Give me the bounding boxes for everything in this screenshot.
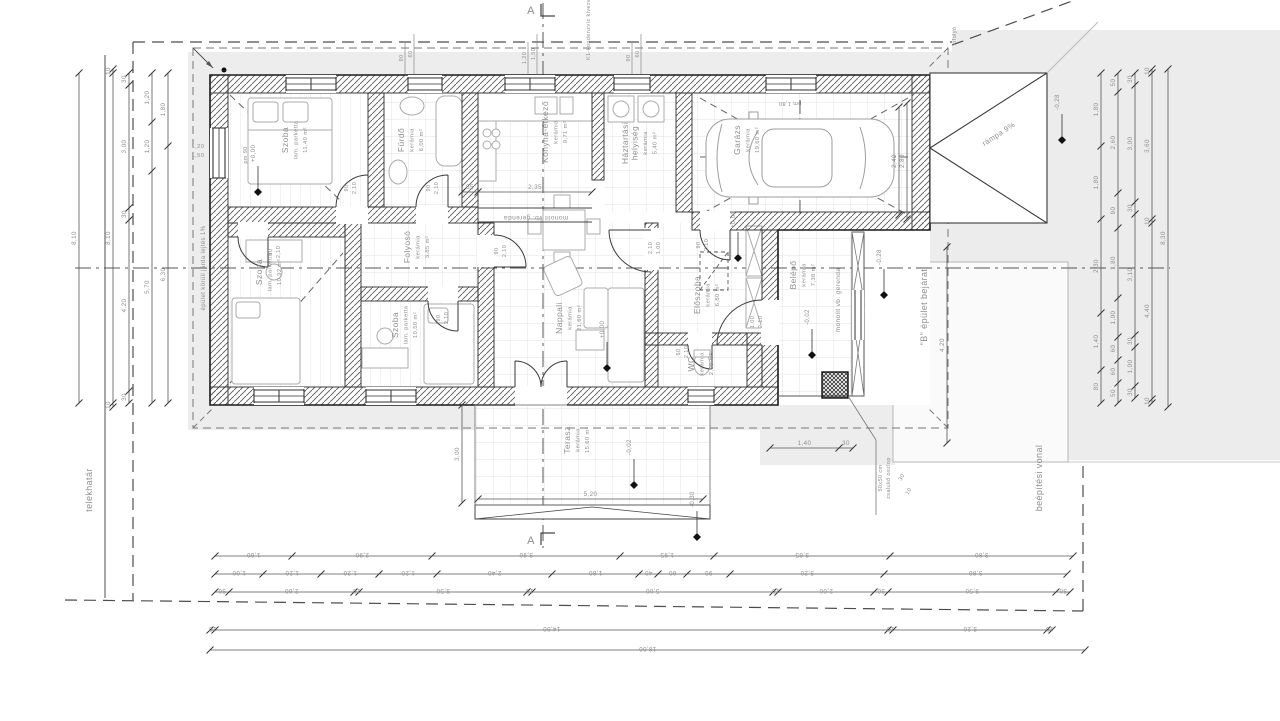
door-dim: 90 — [268, 249, 274, 256]
dim-label: 10 — [1046, 625, 1054, 632]
dim-label: 3,65 — [795, 551, 809, 558]
telekhatar-label: telekhatár — [84, 468, 94, 512]
door-dim: 90 — [494, 248, 500, 255]
wall-east-garage — [912, 75, 930, 230]
dim-label: 80 — [1093, 383, 1100, 391]
dim-label: 30 — [121, 393, 128, 401]
room-label: 10,50 m² — [413, 312, 419, 338]
dim-label: 10 — [1144, 217, 1151, 225]
dim-label: 30 — [1059, 587, 1067, 594]
room-label: kerámia — [554, 120, 560, 144]
dim-label: 14,00 — [543, 625, 561, 632]
room-label: 15,60 m² — [585, 427, 591, 453]
dim-label: 60 — [1110, 345, 1117, 353]
dim-label: 55 — [466, 184, 474, 191]
level-marker: +0,00 — [251, 145, 257, 162]
room-label: kerámia — [802, 263, 808, 287]
bathtub — [436, 96, 462, 166]
room-label: kerámia — [746, 128, 752, 152]
pm90-label: pm 90 — [243, 146, 249, 163]
room-label: kerámia — [410, 128, 416, 152]
room-label: Nappali — [554, 302, 564, 334]
door-dim: 2,10 — [352, 182, 358, 194]
room-label: Konyha-étkező — [540, 101, 550, 163]
room-label: Szoba — [254, 259, 264, 285]
room-label: 5,40 m² — [653, 132, 659, 154]
window-dim: 60 — [635, 51, 641, 58]
sofa — [608, 288, 644, 382]
dim-label: 50 — [1110, 389, 1117, 397]
room-label: kerámia — [416, 235, 422, 259]
room-label: lam. parketta — [294, 120, 300, 159]
dim-label: 1,95 — [660, 551, 674, 558]
dim-label: 8,10 — [105, 231, 112, 245]
room-label: kerámia — [643, 131, 649, 155]
jarda-label: épület körüli járda lejtés 1% — [201, 225, 207, 310]
washbasin — [400, 97, 424, 115]
dim-label: 3,00 — [454, 447, 461, 461]
room-label: 7,38 m² — [811, 264, 817, 286]
room-label: 3,85 m² — [425, 236, 431, 258]
dim-label: 30 — [121, 75, 128, 83]
level-marker: -0,28 — [877, 249, 883, 265]
dim-label: 3,80 — [969, 569, 983, 576]
dim-label: 10 — [772, 587, 780, 594]
room-terasz-floor — [475, 405, 710, 505]
dim-label: 5,00 — [646, 587, 660, 594]
kifolyo-label: kifolyó — [952, 27, 958, 45]
door-dim: 2,10 — [704, 239, 710, 251]
dim-label: 3,00 — [121, 140, 128, 154]
dim-label: 30 — [1127, 75, 1134, 83]
kondenz-label: K1-kondenzvíz kivezetés — [586, 0, 592, 60]
dim-label: 60 — [669, 569, 677, 576]
dim-label: 2,40 — [891, 154, 898, 168]
dim-label: 2,90 — [355, 551, 369, 558]
section_a-label: A — [527, 535, 535, 547]
dim-label: 30 — [898, 473, 907, 482]
dim-label: 1,20 — [285, 569, 299, 576]
door-dim: 2,10 — [276, 246, 282, 258]
dim-label: 10 — [1144, 397, 1151, 405]
window-dim: 90 — [399, 55, 405, 62]
dim-label: 10 — [353, 587, 361, 594]
level-marker: -0,28 — [1055, 94, 1061, 110]
dim-label: 30 — [877, 587, 885, 594]
room-label: 10,92 m² — [277, 259, 283, 285]
window-dim: 1,20 — [192, 144, 205, 150]
door-dim: 90 — [344, 185, 350, 192]
dim-label: 1,60 — [247, 551, 261, 558]
dim-label: 10 — [526, 587, 534, 594]
room-label: helyiség — [630, 126, 640, 160]
dim-label: 2,40 — [488, 569, 502, 576]
dim-label: 3,50 — [436, 587, 450, 594]
dim-label: 10 — [105, 67, 112, 75]
dim-label: 60 — [1110, 368, 1117, 376]
dim-label: 3,00 — [1127, 137, 1134, 151]
dim-label: 4,20 — [121, 299, 128, 313]
dim-label: 2,00 — [819, 587, 833, 594]
level-marker: -0,02 — [627, 439, 633, 455]
dim-label: 1,00 — [232, 569, 246, 576]
dim-label: 3,20 — [963, 625, 977, 632]
dim-label: 30 — [1127, 337, 1134, 345]
dim-label: 3,90 — [519, 551, 533, 558]
dim-label: 2,30 — [1093, 259, 1100, 273]
room-label: Folyosó — [402, 231, 412, 264]
dim-label: 1,00 — [1127, 360, 1134, 374]
dim-label: 5,20 — [584, 491, 598, 498]
dim-label: 1,80 — [1093, 176, 1100, 190]
room-label: Fürdő — [396, 128, 406, 152]
wall-west — [210, 75, 228, 405]
window-dim: 1,20 — [522, 52, 528, 64]
dim-label: 30 — [121, 210, 128, 218]
door-dim: 90 — [436, 315, 442, 322]
room-label: 9,71 m² — [563, 121, 569, 143]
dim-label: 10 — [1144, 67, 1151, 75]
dim-label: 10 — [105, 401, 112, 409]
dim-label: 3,50 — [965, 587, 979, 594]
dim-label: 90 — [705, 569, 713, 576]
room-label: kerámia — [568, 306, 574, 330]
window-dim: 90 — [626, 55, 632, 62]
door-dim: 2,10 — [502, 245, 508, 257]
dim-label: 3,20 — [800, 569, 814, 576]
dim-label: 1,20 — [144, 91, 151, 105]
door-dim: 2,10 — [648, 242, 654, 254]
dim-label: 10 — [209, 625, 217, 632]
room-label: Háztartási — [620, 122, 630, 164]
dim-label: 10 — [905, 487, 914, 496]
dim-label: 1,20 — [343, 569, 357, 576]
desk-2 — [362, 348, 408, 368]
level-marker: -0,02 — [805, 309, 811, 325]
dim-label: 10 — [887, 625, 895, 632]
dim-label: 6,30 — [160, 268, 167, 282]
dim-label: 8,30 — [1160, 231, 1167, 245]
level-marker: +0,00 — [731, 211, 737, 228]
toilet-1 — [389, 160, 407, 184]
zsaluko-label: 50x50 cm — [878, 464, 884, 491]
room-label: lam. parketta — [268, 252, 274, 291]
window-dim: 1,50 — [531, 48, 537, 60]
dim-label: 4,20 — [939, 338, 946, 352]
room-label: 2,00 m² — [709, 353, 715, 375]
room-label: Előszoba — [692, 276, 702, 314]
dim-label: 1,80 — [1110, 256, 1117, 270]
window-dim: 1,50 — [192, 153, 205, 159]
dim-label: 1,80 — [1093, 103, 1100, 117]
dim-label: 4,40 — [1144, 304, 1151, 318]
door-dim: 90 — [696, 242, 702, 249]
dim-label: 3,10 — [1127, 268, 1134, 282]
pm180-label: pm 1,80 — [779, 100, 802, 106]
dim-label: 1,20 — [144, 140, 151, 154]
room-label: kerámia — [700, 352, 706, 376]
door-dim: 1,00 — [750, 316, 756, 328]
room-label: lam. parketta — [404, 305, 410, 344]
dim-label: 40 — [645, 569, 653, 576]
desk-1 — [246, 240, 302, 262]
door-dim: 1,00 — [656, 242, 662, 254]
dim-label: 1,80 — [160, 103, 167, 117]
dim-label: 2,60 — [1110, 136, 1117, 150]
dim-label: 3,80 — [975, 551, 989, 558]
dim-label: 2,60 — [285, 587, 299, 594]
dim-label: 8,10 — [71, 231, 78, 245]
beepitesi-label: beépítési vonal — [1034, 445, 1044, 512]
room-label: Belépő — [788, 261, 798, 290]
window-dim: 60 — [408, 51, 414, 58]
door-dim: 2,10 — [684, 346, 690, 358]
room-label: Szoba — [390, 312, 400, 338]
room-label: Terasz — [562, 426, 572, 453]
room-label: 6,80 m² — [715, 284, 721, 306]
dim-label: 1,40 — [798, 440, 812, 447]
room-label: kerámia — [576, 428, 582, 452]
dim-label: 1,80 — [589, 569, 603, 576]
dim-label: 3,60 — [1144, 139, 1151, 153]
level-marker: -0,30 — [690, 491, 696, 507]
door-dim: 60 — [676, 349, 682, 356]
gerenda2-label: monolit vb. gerenda — [835, 268, 842, 333]
dim-label: 30 — [1127, 204, 1134, 212]
section_a-label: A — [527, 5, 535, 17]
floor-plan: Szobalam. parketta11,40 m²Fürdőkerámia6,… — [0, 0, 1280, 721]
dim-label: 1,40 — [1093, 335, 1100, 349]
room-label: Szoba — [280, 127, 290, 153]
dim-label: 90 — [1110, 207, 1117, 215]
room-label: 11,40 m² — [303, 127, 309, 153]
dim-label: 5,70 — [144, 280, 151, 294]
dim-label: 50 — [1110, 79, 1117, 87]
sidewalk-band-2 — [760, 430, 895, 465]
room-label: 6,00 m² — [419, 129, 425, 151]
dim-label: 30 — [218, 587, 226, 594]
dim-label: 2,80 — [899, 154, 906, 168]
level-marker: +0,00 — [600, 321, 606, 338]
door-dim: 2,10 — [444, 312, 450, 324]
room-label: kerámia — [706, 283, 712, 307]
door-dim: 2,10 — [758, 316, 764, 328]
dim-label: 18,00 — [639, 645, 657, 652]
dim-label: 30 — [1127, 388, 1134, 396]
room-label: 19,60 m² — [755, 127, 761, 153]
room-label: Garázs — [732, 125, 742, 155]
room-label: 21,60 m² — [577, 305, 583, 331]
porch-column — [822, 372, 848, 398]
gerenda1-label: monolit vb. gerenda — [504, 214, 569, 221]
b_bejarat-label: "B" épület bejárat — [919, 269, 929, 346]
zsaluko-label: zsalukő oszlop — [886, 457, 892, 499]
drain-point-icon — [222, 68, 227, 73]
door-dim: 2,10 — [434, 182, 440, 194]
dim-label: 30 — [842, 440, 850, 447]
dim-label: 2,35 — [528, 184, 542, 191]
dim-label: 1,00 — [1110, 311, 1117, 325]
door-dim: 90 — [426, 185, 432, 192]
dim-label: 1,20 — [401, 569, 415, 576]
